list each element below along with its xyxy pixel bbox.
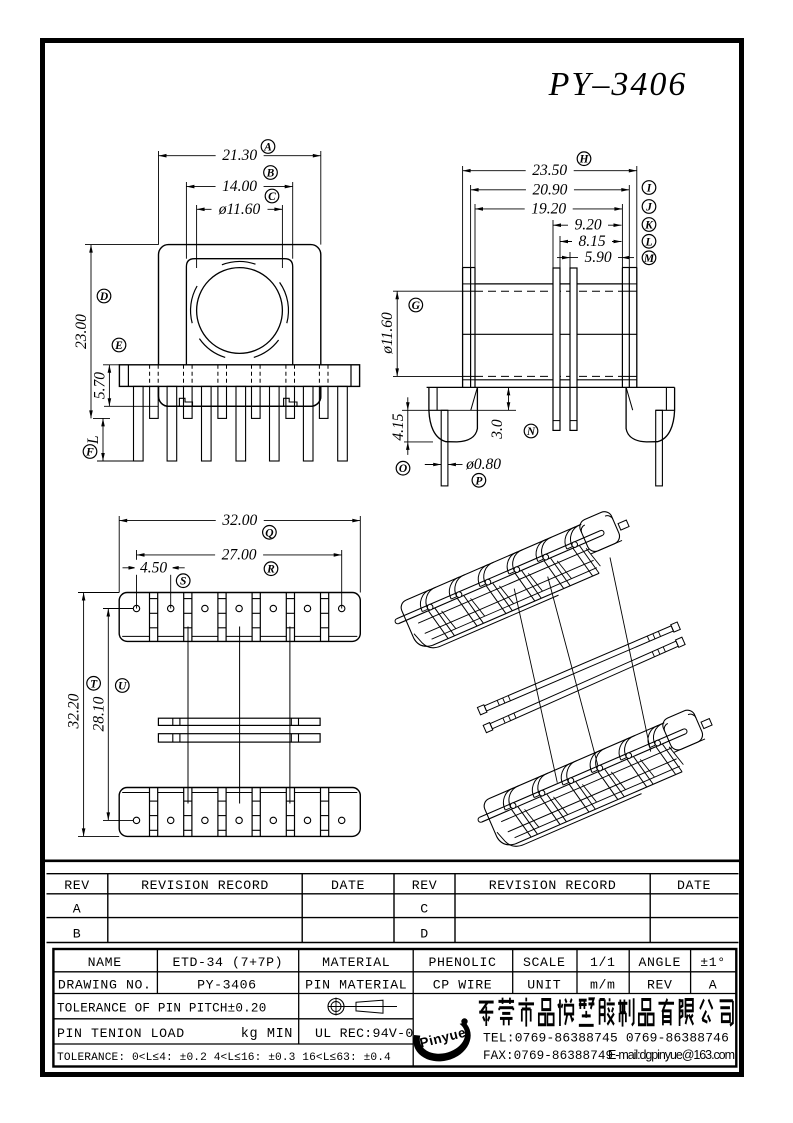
svg-text:T: T — [90, 678, 98, 690]
svg-text:14.00: 14.00 — [222, 178, 257, 195]
svg-text:PIN TENION LOAD: PIN TENION LOAD — [57, 1026, 185, 1041]
svg-text:1/1: 1/1 — [590, 955, 616, 970]
svg-text:E-mail:dgpinyue@163.com: E-mail:dgpinyue@163.com — [608, 1048, 735, 1062]
svg-text:DATE: DATE — [677, 878, 711, 893]
svg-text:32.00: 32.00 — [221, 512, 257, 529]
svg-text:A: A — [73, 902, 82, 917]
svg-text:TOLERANCE: 0<L≤4: ±0.2 4<L≤16: TOLERANCE: 0<L≤4: ±0.2 4<L≤16: ±0.3 16<L… — [57, 1052, 391, 1064]
svg-text:D: D — [420, 926, 429, 941]
svg-text:REV: REV — [647, 977, 673, 992]
svg-text:DATE: DATE — [331, 878, 365, 893]
svg-text:FAX:0769-86388749: FAX:0769-86388749 — [483, 1049, 613, 1063]
svg-text:SCALE: SCALE — [523, 955, 566, 970]
svg-text:NAME: NAME — [88, 955, 122, 970]
svg-text:R: R — [266, 564, 275, 576]
svg-text:E: E — [114, 340, 123, 352]
svg-text:20.90: 20.90 — [533, 181, 568, 198]
svg-text:ANGLE: ANGLE — [639, 955, 682, 970]
svg-text:8.15: 8.15 — [578, 233, 605, 250]
svg-text:3.0: 3.0 — [489, 419, 506, 440]
svg-text:A: A — [709, 977, 718, 992]
svg-text:B: B — [73, 926, 82, 941]
svg-text:PY–3406: PY–3406 — [548, 66, 688, 103]
svg-text:23.00: 23.00 — [73, 314, 90, 349]
svg-text:UNIT: UNIT — [527, 977, 561, 992]
svg-text:9.20: 9.20 — [574, 217, 601, 234]
svg-text:±1°: ±1° — [700, 955, 726, 970]
svg-text:L: L — [85, 435, 102, 445]
svg-text:S: S — [180, 576, 186, 588]
svg-text:REV: REV — [412, 878, 438, 893]
svg-text:ø0.80: ø0.80 — [465, 456, 501, 473]
svg-text:4.15: 4.15 — [390, 413, 407, 440]
svg-text:MATERIAL: MATERIAL — [322, 955, 390, 970]
svg-text:TEL:0769-86388745 0769-863887: TEL:0769-86388745 0769-86388746 — [483, 1031, 729, 1046]
svg-text:O: O — [399, 463, 407, 475]
svg-text:5.90: 5.90 — [584, 249, 611, 266]
svg-text:ø11.60: ø11.60 — [379, 312, 396, 355]
svg-text:CP WIRE: CP WIRE — [433, 977, 493, 992]
svg-text:REV: REV — [64, 878, 90, 893]
svg-text:N: N — [526, 426, 536, 438]
svg-text:C: C — [268, 191, 276, 203]
svg-text:23.50: 23.50 — [532, 162, 567, 179]
svg-text:kg MIN: kg MIN — [241, 1027, 293, 1042]
svg-text:D: D — [99, 291, 109, 303]
svg-text:L: L — [644, 236, 652, 248]
svg-text:m/m: m/m — [590, 977, 616, 992]
svg-text:K: K — [644, 220, 654, 232]
svg-text:27.00: 27.00 — [222, 546, 257, 563]
svg-text:H: H — [579, 154, 590, 166]
svg-text:32.20: 32.20 — [66, 693, 83, 729]
svg-text:5.70: 5.70 — [91, 372, 108, 399]
svg-text:U: U — [118, 681, 127, 693]
svg-text:PY-3406: PY-3406 — [197, 977, 257, 992]
svg-text:ETD-34 (7+7P): ETD-34 (7+7P) — [172, 955, 283, 970]
svg-text:I: I — [646, 183, 652, 195]
svg-text:TOLERANCE OF PIN PITCH±0.20: TOLERANCE OF PIN PITCH±0.20 — [57, 1002, 266, 1016]
svg-text:F: F — [85, 447, 94, 459]
svg-text:19.20: 19.20 — [531, 200, 566, 217]
svg-text:PIN MATERIAL: PIN MATERIAL — [305, 977, 407, 992]
svg-text:REVISION RECORD: REVISION RECORD — [489, 878, 617, 893]
svg-text:28.10: 28.10 — [90, 696, 107, 731]
svg-text:B: B — [266, 168, 275, 180]
svg-text:M: M — [643, 253, 655, 265]
svg-text:A: A — [263, 142, 272, 154]
svg-text:P: P — [475, 475, 483, 487]
svg-text:Q: Q — [265, 527, 273, 539]
svg-text:PHENOLIC: PHENOLIC — [428, 955, 496, 970]
svg-text:UL REC:94V-0: UL REC:94V-0 — [315, 1026, 414, 1041]
svg-text:DRAWING NO.: DRAWING NO. — [58, 977, 152, 992]
svg-text:REVISION RECORD: REVISION RECORD — [141, 878, 269, 893]
svg-text:ø11.60: ø11.60 — [218, 201, 261, 218]
svg-text:21.30: 21.30 — [222, 147, 257, 164]
svg-text:G: G — [412, 300, 421, 312]
svg-text:C: C — [420, 902, 429, 917]
svg-text:4.50: 4.50 — [140, 559, 167, 576]
